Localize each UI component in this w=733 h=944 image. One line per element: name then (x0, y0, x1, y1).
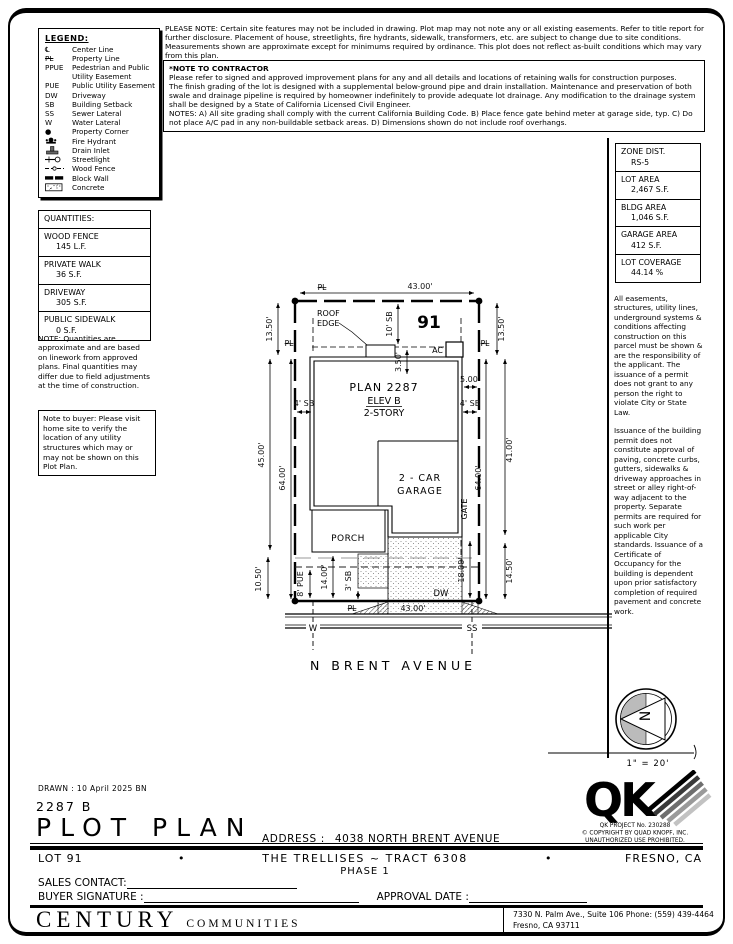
elevation-label: ELEV B (367, 396, 400, 407)
property-corner-dot (476, 598, 483, 605)
zoning-table: ZONE DIST.RS-5 LOT AREA2,467 S.F. BLDG A… (615, 145, 701, 283)
dim-ac-width: 5.00' (460, 375, 480, 384)
legend-label: Sewer Lateral (72, 109, 155, 118)
title-rule-thick (30, 846, 703, 850)
legend-label: Drain Inlet (72, 146, 155, 155)
bldg-area-value: 1,046 S.F. (621, 213, 697, 223)
private-walk-value: 36 S.F. (44, 270, 147, 280)
builder-name: CENTURY (36, 907, 178, 933)
roof-edge-label-1: ROOF (317, 309, 340, 318)
pl-label-top: PL (318, 283, 328, 292)
bldg-area-label: BLDG AREA (621, 203, 697, 213)
legend-label: Building Setback (72, 100, 155, 109)
property-corner-icon: ● (45, 127, 72, 136)
legend-row-dw: DWDriveway (45, 91, 155, 100)
separator-bullet: • (545, 852, 552, 865)
water-lateral-label: W (309, 624, 318, 634)
lot-area-label: LOT AREA (621, 175, 697, 185)
phase-label: PHASE 1 (210, 866, 520, 877)
contractor-note-p3: NOTES: A) All site grading shall comply … (169, 109, 699, 127)
wood-fence-value: 145 L.F. (44, 242, 147, 252)
approval-date-label: APPROVAL DATE : (377, 891, 469, 903)
legend-row-wood-fence: Wood Fence (45, 164, 155, 173)
contractor-note-p1: Please refer to signed and approved impr… (169, 73, 699, 82)
ac-pad (446, 342, 463, 357)
dim-driveway-depth: 18.00' (457, 557, 466, 582)
legend-label: Property Line (72, 54, 155, 63)
property-corner-dot (292, 298, 299, 305)
gate-label: GATE (460, 499, 469, 520)
roof-edge-leader (339, 323, 367, 345)
legend-label: Fire Hydrant (72, 137, 155, 146)
builder-name-sub: COMMUNITIES (186, 918, 300, 930)
w-abbr: W (45, 118, 72, 127)
apron-flare-left (352, 602, 388, 614)
city-label: FRESNO, CA (598, 852, 702, 865)
north-label: N (638, 711, 654, 721)
dim-lot-width-bottom: 43.00' (400, 604, 425, 613)
dim-left-top: 13.50' (265, 316, 274, 341)
legend-row-ppue: PPUEPedestrian and Public Utility Easeme… (45, 63, 155, 81)
zone-district-box: ZONE DIST.RS-5 (615, 143, 701, 172)
dim-left-mid: 45.00' (257, 442, 266, 467)
legend-row-pue: PUEPublic Utility Easement (45, 81, 155, 90)
contractor-note-title: *NOTE TO CONTRACTOR (169, 64, 699, 73)
dim-ac-depth: 3.50' (394, 352, 403, 372)
concrete-icon (45, 183, 72, 192)
office-address-line1: 7330 N. Palm Ave., Suite 106 Phone: (559… (513, 909, 714, 920)
dim-right-bottom: 14.50' (505, 558, 514, 583)
qk-project-number: QK PROJECT No. 230288 (600, 823, 671, 829)
dim-left-bottom: 10.50' (254, 566, 263, 591)
legend-row-sb: SBBuilding Setback (45, 100, 155, 109)
private-walk-qty-box: PRIVATE WALK36 S.F. (38, 256, 151, 286)
garage-area-label: GARAGE AREA (621, 230, 697, 240)
private-walk-label: PRIVATE WALK (44, 260, 147, 270)
dim-left-inner: 64.00' (278, 465, 287, 490)
ac-label: AC (432, 346, 443, 355)
legend-row-block-wall: Block Wall (45, 174, 155, 183)
roof-bump (366, 345, 395, 357)
legend-box: LEGEND: ℄Center Line PLProperty Line PPU… (38, 28, 160, 198)
scale-label: 1" = 20' (627, 759, 670, 769)
dim-front-setback: 3' SB (344, 571, 353, 591)
bldg-area-box: BLDG AREA1,046 S.F. (615, 199, 701, 228)
garage-label-1: 2 - CAR (399, 473, 441, 484)
legend-row-streetlight: Streetlight (45, 155, 155, 164)
contractor-note-p2: The finish grading of the lot is designe… (169, 82, 699, 109)
legend-label: Streetlight (72, 155, 155, 164)
buyer-signature-blank (144, 893, 359, 903)
lot-label: LOT 91 (38, 852, 83, 865)
wood-fence-icon (45, 164, 72, 173)
property-corner-dot (292, 598, 299, 605)
sheet-title: PLOT PLAN (36, 813, 253, 842)
note-to-contractor-box: *NOTE TO CONTRACTOR Please refer to sign… (163, 60, 705, 132)
footer-divider (503, 907, 504, 934)
dim-side-setback-left: 4' SB (294, 399, 314, 408)
site-plan-drawing: W SS N BRENT AVENUE (240, 270, 620, 710)
plot-plan-sheet: LEGEND: ℄Center Line PLProperty Line PPU… (0, 0, 733, 944)
dim-front: 14.00' (320, 564, 329, 589)
zone-district-value: RS-5 (621, 158, 697, 168)
lot-coverage-label: LOT COVERAGE (621, 258, 697, 268)
pue-abbr: PUE (45, 81, 72, 90)
title-rule-thin (30, 843, 703, 844)
garage-label-2: GARAGE (397, 486, 443, 497)
pl-label-right: PL (481, 339, 491, 348)
approval-date-blank (469, 893, 587, 903)
sales-contact-row: SALES CONTACT: (38, 877, 297, 889)
north-arrow-and-scale: N 1" = 20' (540, 680, 720, 780)
driveway-qty-box: DRIVEWAY305 S.F. (38, 284, 151, 314)
pl-label-bottom: PL (348, 604, 358, 613)
property-corner-dot (476, 298, 483, 305)
wood-fence-label: WOOD FENCE (44, 232, 147, 242)
streetlight-icon (45, 155, 72, 164)
fire-hydrant-icon (45, 137, 72, 146)
dim-right-mid: 41.00' (505, 437, 514, 462)
driveway-value: 305 S.F. (44, 298, 147, 308)
porch-outline (312, 510, 385, 552)
legend-label: Center Line (72, 45, 155, 54)
quantities-header: QUANTITIES: (38, 210, 151, 229)
roof-edge-label-2: EDGE (317, 319, 339, 328)
legend-row-centerline: ℄Center Line (45, 45, 155, 54)
dim-right-inner: 64.00' (474, 465, 483, 490)
legend-title: LEGEND: (45, 33, 155, 44)
wood-fence-qty-box: WOOD FENCE145 L.F. (38, 228, 151, 258)
public-sidewalk-label: PUBLIC SIDEWALK (44, 315, 147, 325)
dim-lot-width-top: 43.00' (407, 282, 432, 291)
lot-area-box: LOT AREA2,467 S.F. (615, 171, 701, 200)
house-footprint (310, 342, 463, 552)
lot-coverage-box: LOT COVERAGE44.14 % (615, 254, 701, 283)
city-permit-notes: All easements, structures, utility lines… (614, 294, 704, 616)
scale-bar: 1" = 20' (548, 745, 696, 769)
sb-abbr: SB (45, 100, 72, 109)
legend-row-w: WWater Lateral (45, 118, 155, 127)
garage-area-value: 412 S.F. (621, 241, 697, 251)
sales-contact-blank (127, 879, 297, 889)
tract-label: THE TRELLISES ~ TRACT 6308 (210, 852, 520, 865)
sewer-lateral-label: SS (467, 624, 478, 634)
private-walk-area (358, 554, 388, 588)
zone-district-label: ZONE DIST. (621, 147, 697, 157)
driveway-area (388, 537, 462, 601)
legend-row-concrete: Concrete (45, 183, 155, 192)
plan-number: 2287 B (36, 799, 92, 814)
separator-bullet: • (178, 852, 185, 865)
legend-label: Concrete (72, 183, 155, 192)
legend-row-property-corner: ●Property Corner (45, 127, 155, 136)
garage-area-box: GARAGE AREA412 S.F. (615, 226, 701, 255)
qk-logo-block: QK QK PROJECT No. 230288 © COPYRIGHT BY … (556, 770, 714, 846)
driveway-label: DRIVEWAY (44, 288, 147, 298)
dim-rear-setback: 10' SB (385, 311, 394, 337)
legend-label: Wood Fence (72, 164, 155, 173)
qk-copyright: © COPYRIGHT BY QUAD KNOPF, INC. (582, 830, 689, 837)
legend-label: Driveway (72, 91, 155, 100)
note-to-buyer-box: Note to buyer: Please visit home site to… (38, 410, 156, 476)
block-wall-icon (45, 174, 72, 183)
centerline-symbol: ℄ (45, 45, 72, 54)
dw-abbr: DW (45, 91, 72, 100)
builder-logo: CENTURY COMMUNITIES (36, 907, 300, 933)
porch-label: PORCH (331, 534, 365, 544)
quantities-table: QUANTITIES: WOOD FENCE145 L.F. PRIVATE W… (38, 212, 151, 341)
ss-abbr: SS (45, 109, 72, 118)
permit-note-p2: Issuance of the building permit does not… (614, 426, 704, 616)
dim-side-setback-right: 4' SB (460, 399, 480, 408)
qk-logo-text: QK (584, 773, 658, 827)
office-address: 7330 N. Palm Ave., Suite 106 Phone: (559… (513, 909, 714, 931)
pl-label-left: PL (285, 339, 295, 348)
property-line-symbol: PL (45, 54, 72, 63)
signature-row: BUYER SIGNATURE : APPROVAL DATE : (38, 891, 587, 903)
north-arrow: N (616, 689, 676, 749)
dw-label: DW (434, 589, 450, 599)
legend-row-drain-inlet: Drain Inlet (45, 146, 155, 155)
quantities-title: QUANTITIES: (44, 214, 147, 224)
lot-area-value: 2,467 S.F. (621, 185, 697, 195)
quantities-note: NOTE: Quantities are approximate and are… (38, 334, 151, 390)
plan-name-label: PLAN 2287 (349, 381, 418, 394)
buyer-signature-label: BUYER SIGNATURE : (38, 891, 144, 903)
legend-label: Block Wall (72, 174, 155, 183)
legend-row-property-line: PLProperty Line (45, 54, 155, 63)
legend-label: Public Utility Easement (72, 81, 155, 90)
sales-contact-label: SALES CONTACT: (38, 877, 127, 889)
legend-label: Pedestrian and Public Utility Easement (72, 63, 155, 81)
office-address-line2: Fresno, CA 93711 (513, 920, 714, 931)
lot-number-label: 91 (417, 313, 441, 333)
story-label: 2-STORY (364, 408, 405, 419)
legend-row-fire-hydrant: Fire Hydrant (45, 137, 155, 146)
drawn-date: DRAWN : 10 April 2025 BN (38, 784, 147, 793)
dim-pue: 8' PUE (296, 571, 305, 597)
legend-row-ss: SSSewer Lateral (45, 109, 155, 118)
please-note-text: PLEASE NOTE: Certain site features may n… (165, 24, 705, 60)
legend-label: Property Corner (72, 127, 155, 136)
drain-inlet-icon (45, 146, 72, 155)
legend-label: Water Lateral (72, 118, 155, 127)
permit-note-p1: All easements, structures, utility lines… (614, 294, 704, 417)
street-name-label: N BRENT AVENUE (310, 658, 476, 673)
dim-right-top: 13.50' (497, 316, 506, 341)
ppue-abbr: PPUE (45, 63, 72, 81)
lot-coverage-value: 44.14 % (621, 268, 697, 278)
